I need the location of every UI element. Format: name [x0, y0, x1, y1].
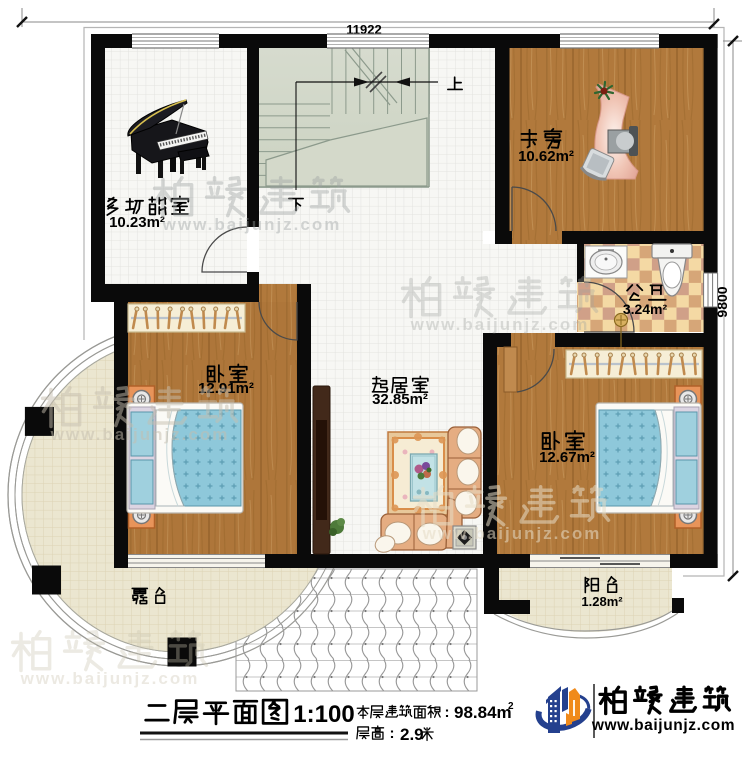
- svg-text:2: 2: [508, 701, 514, 712]
- svg-text::: :: [390, 725, 395, 742]
- svg-text:www.baijunjz.com: www.baijunjz.com: [422, 524, 602, 543]
- svg-text:2.9: 2.9: [400, 725, 424, 744]
- svg-text:www.baijunjz.com: www.baijunjz.com: [162, 215, 342, 234]
- svg-text:1:100: 1:100: [293, 701, 354, 728]
- svg-text:3.24m²: 3.24m²: [623, 301, 668, 317]
- svg-text:1.28m²: 1.28m²: [581, 594, 623, 609]
- svg-text:12.67m²: 12.67m²: [539, 449, 595, 466]
- svg-text:98.84m: 98.84m: [454, 703, 512, 722]
- svg-text:www.baijunjz.com: www.baijunjz.com: [410, 315, 590, 334]
- svg-text:32.85m²: 32.85m²: [372, 391, 428, 408]
- svg-text::: :: [445, 704, 450, 721]
- svg-text:10.62m²: 10.62m²: [518, 148, 574, 165]
- svg-text:www.baijunjz.com: www.baijunjz.com: [591, 717, 735, 734]
- svg-text:www.baijunjz.com: www.baijunjz.com: [20, 669, 200, 688]
- svg-text:10.23m²: 10.23m²: [109, 214, 165, 231]
- svg-text:www.baijunjz.com: www.baijunjz.com: [50, 425, 230, 444]
